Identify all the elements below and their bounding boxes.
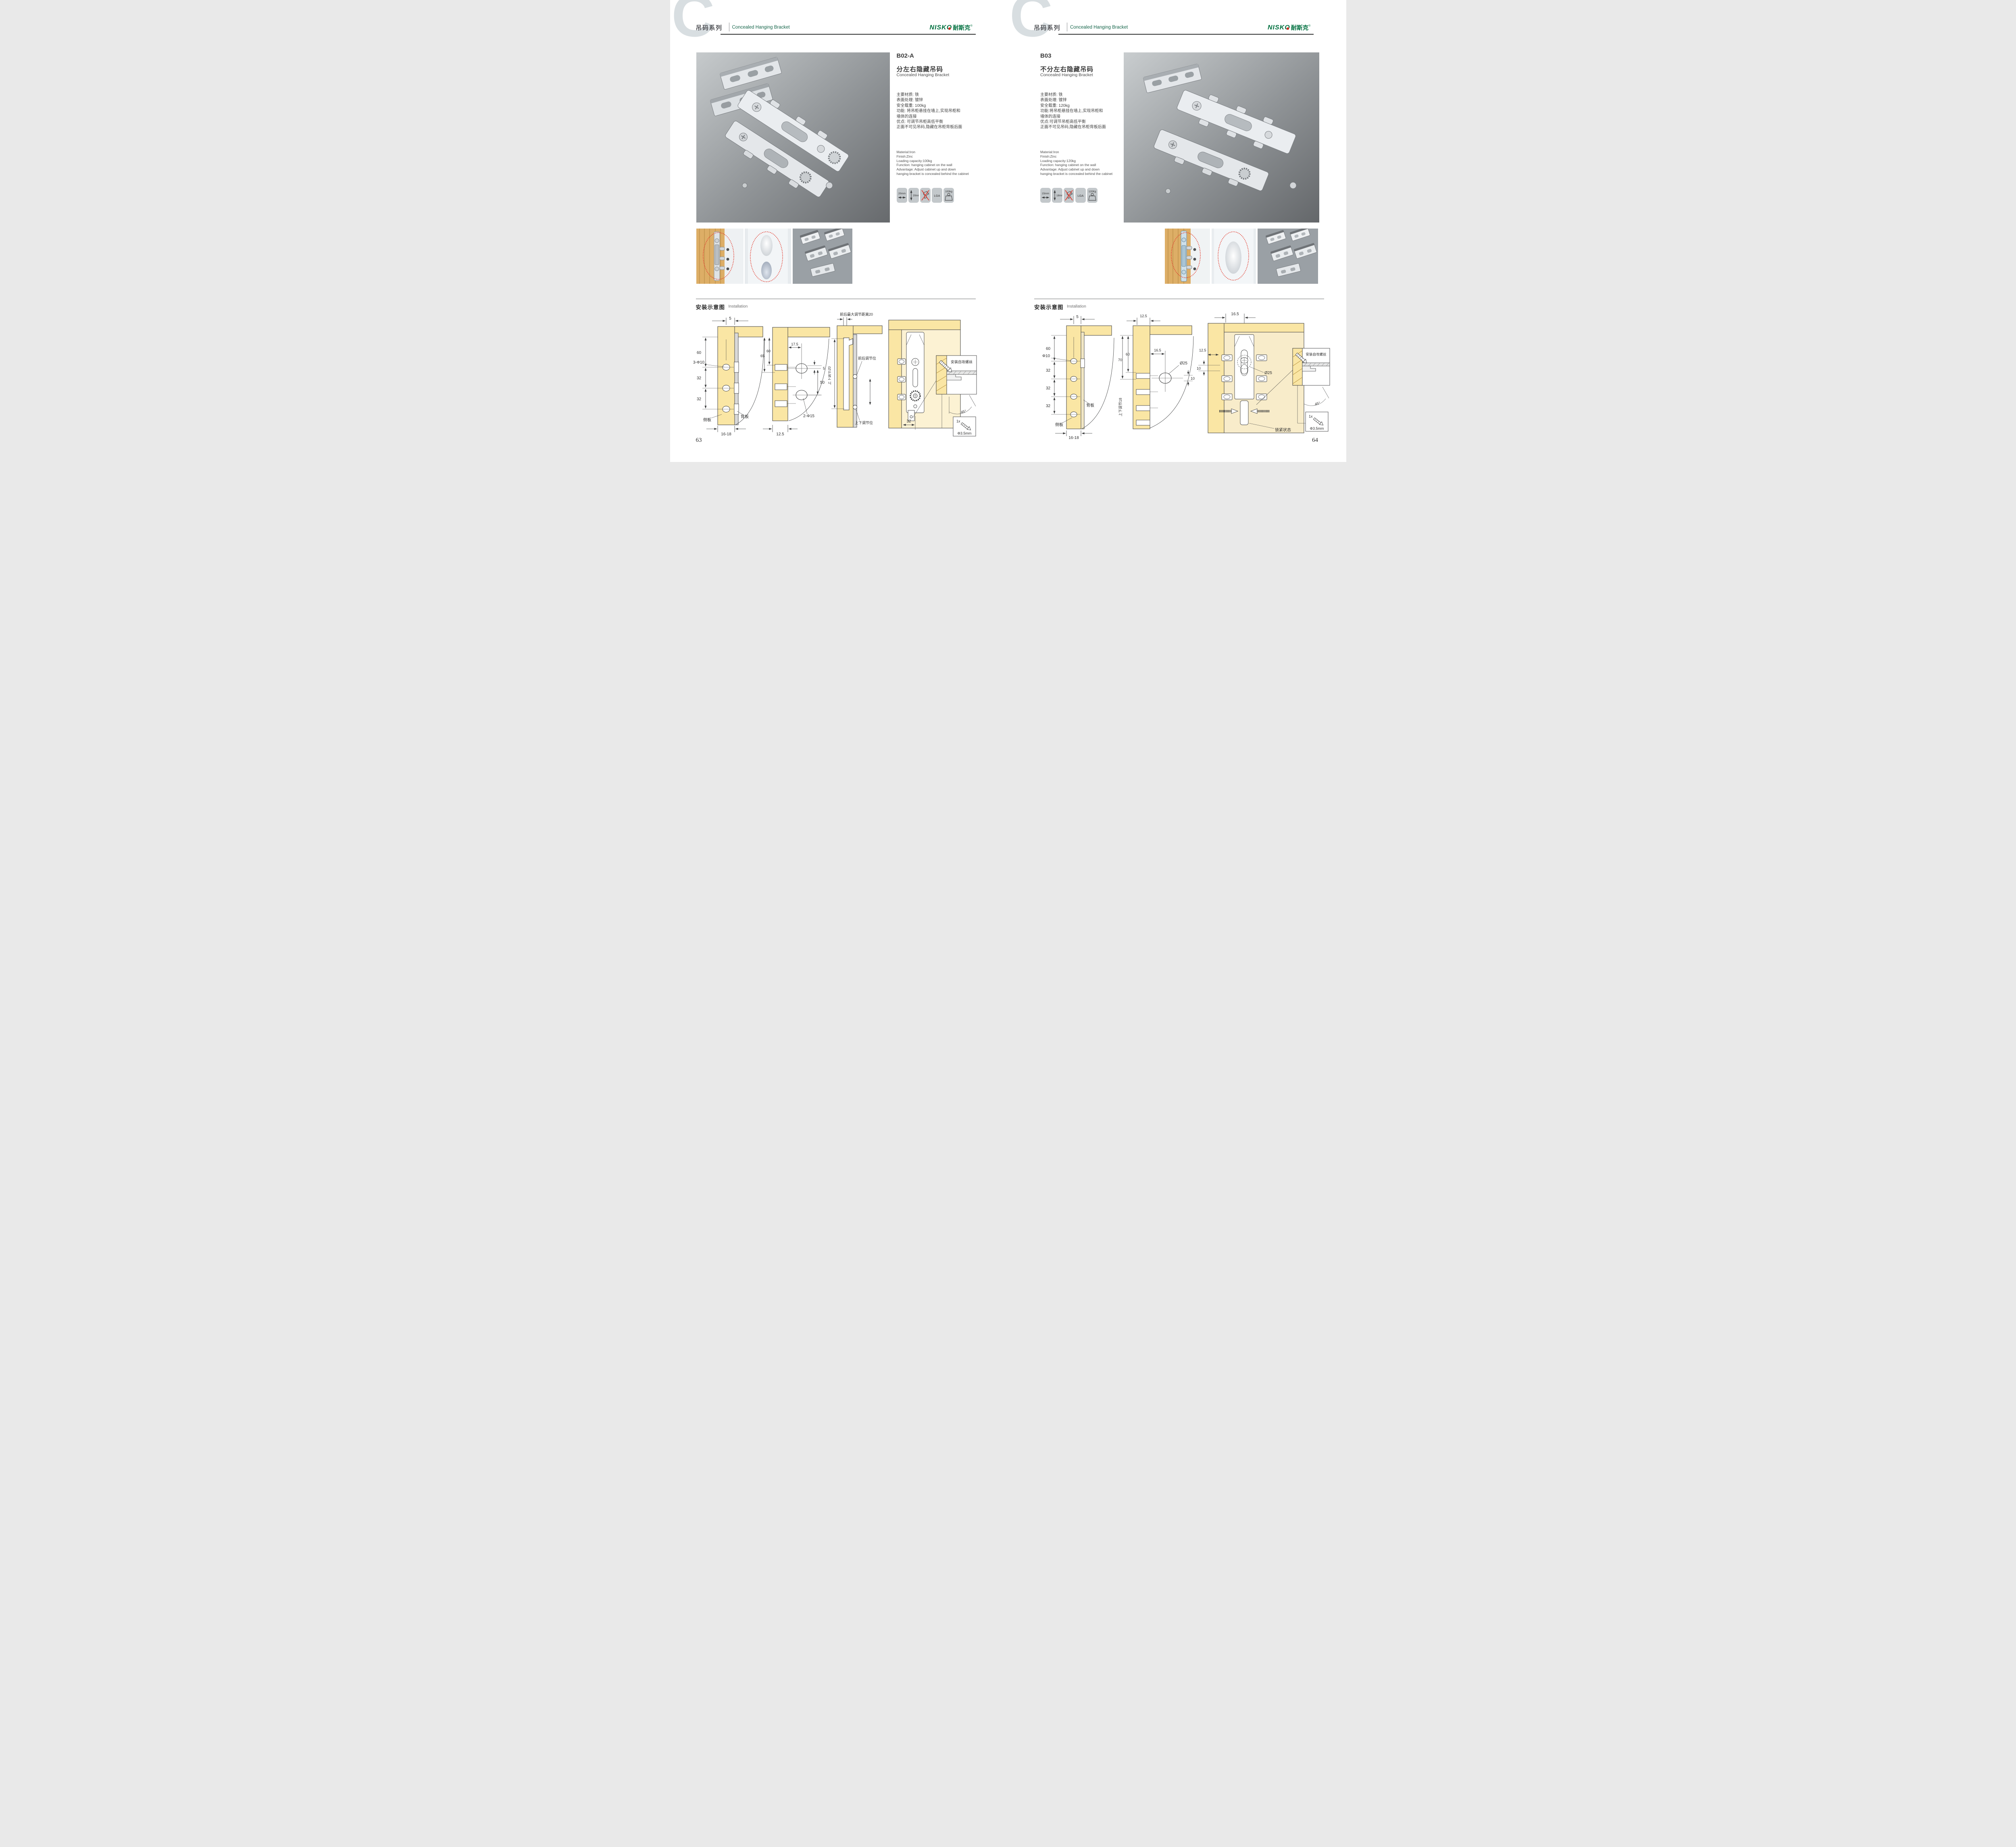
series-title-cn: 吊码系列: [1034, 23, 1060, 32]
spec-line: 功能:将吊柜悬挂在墙上,实现吊柜和: [1040, 108, 1129, 114]
spec-line: 功能: 将吊柜悬挂在墙上,实现吊柜和: [897, 108, 983, 114]
svg-text:15mm: 15mm: [1042, 192, 1049, 195]
brand-logo-cn: 耐斯克: [953, 23, 971, 32]
svg-text:16.5: 16.5: [1231, 312, 1239, 316]
svg-text:120Kg: 120Kg: [1089, 190, 1096, 193]
installation-diagram-mounted-bracket: 32 安装自攻螺丝 45°: [885, 317, 978, 438]
spec-line: 主要材质: 铁: [897, 92, 983, 98]
svg-text:5: 5: [823, 366, 825, 370]
svg-text:12.5: 12.5: [776, 432, 784, 436]
spec-line: Advantage: Adjust cabinet up and down: [897, 167, 985, 172]
svg-text:20mm: 20mm: [913, 194, 919, 197]
spec-line: 主要材质: 铁: [1040, 92, 1129, 98]
product-photo-b02a: [696, 52, 890, 223]
product-name-cn: 分左右隐藏吊码: [897, 64, 943, 73]
page-number: 63: [696, 437, 702, 444]
spec-line: hanging bracket is concealed behind the …: [1040, 172, 1131, 176]
page-64: C 吊码系列 Concealed Hanging Bracket NISKO 耐…: [1008, 0, 1346, 462]
series-watermark: C: [672, 0, 715, 46]
installation-title-en: Installation: [1067, 304, 1086, 309]
svg-text:32: 32: [697, 376, 702, 381]
svg-text:60: 60: [1046, 347, 1051, 351]
svg-text:1x: 1x: [956, 419, 960, 423]
product-specs-en: Material:Iron Finish:Zinc Loading capaci…: [1040, 150, 1131, 176]
svg-text:安装自攻螺丝: 安装自攻螺丝: [950, 360, 972, 364]
svg-text:3-Φ10: 3-Φ10: [693, 360, 704, 365]
product-model: B03: [1040, 52, 1052, 59]
series-title-en: Concealed Hanging Bracket: [732, 25, 790, 30]
spec-line: Advantage: Adjust cabinet up and down: [1040, 167, 1131, 172]
thumb-installed-bracket: [1165, 229, 1210, 284]
spec-line: 表面处理: 镀锌: [1040, 98, 1129, 103]
feature-icons-row: 20mm 20mm LGA: [897, 188, 954, 203]
spec-line: Loading capacity:100kg: [897, 159, 985, 163]
svg-text:1x: 1x: [1309, 414, 1313, 418]
spec-line: 安全载重: 100kg: [897, 103, 983, 108]
no-drill-icon: [1064, 188, 1074, 203]
load-capacity-icon: 120Kg: [1087, 188, 1098, 203]
series-watermark: C: [1010, 0, 1053, 46]
thumb-installed-bracket: [696, 229, 744, 284]
catalog-spread: C 吊码系列 Concealed Hanging Bracket NISKO 耐…: [670, 0, 1346, 462]
spec-line: 墙体的连接: [897, 114, 983, 119]
svg-text:100kg: 100kg: [945, 190, 952, 193]
thumb-plate-set: [793, 229, 852, 284]
svg-text:上下调节20: 上下调节20: [828, 366, 831, 385]
svg-text:上下调节位: 上下调节位: [855, 420, 873, 425]
product-specs-en: Material:Iron Finish:Zinc Loading capaci…: [897, 150, 985, 176]
svg-text:前后调节位: 前后调节位: [858, 356, 876, 360]
svg-text:65: 65: [760, 354, 764, 358]
installation-title-cn: 安装示意图: [696, 303, 725, 311]
width-adjust-icon: 15mm: [1040, 188, 1051, 203]
page-63: C 吊码系列 Concealed Hanging Bracket NISKO 耐…: [670, 0, 1008, 462]
spec-line: Finish:Zinc: [1040, 154, 1131, 159]
svg-text:17.5: 17.5: [791, 342, 798, 346]
svg-text:侧板: 侧板: [1055, 422, 1063, 427]
spec-line: Function: hanging cabinet on the wall: [1040, 163, 1131, 167]
thumb-concealed-hole: [1212, 229, 1256, 284]
svg-text:16.5: 16.5: [1154, 348, 1161, 352]
thumb-plate-set: [1258, 229, 1318, 284]
installation-diagram-locked-bracket: 16.5 Ø25: [1196, 310, 1331, 443]
svg-text:Ø25: Ø25: [1264, 371, 1272, 375]
spec-line: 正面不可见吊码,隐藏在吊柜背板后面: [1040, 125, 1129, 130]
load-capacity-icon: 100kg: [943, 188, 954, 203]
spec-line: 表面处理: 镀锌: [897, 98, 983, 103]
svg-text:Φ3.5mm: Φ3.5mm: [1310, 426, 1324, 431]
product-specs-cn: 主要材质: 铁 表面处理: 镀锌 安全载重: 100kg 功能: 将吊柜悬挂在墙…: [897, 92, 983, 130]
svg-text:32: 32: [906, 419, 911, 424]
no-drill-icon: [920, 188, 931, 203]
product-photo-b03: [1124, 52, 1319, 223]
svg-text:Φ3.5mm: Φ3.5mm: [957, 431, 971, 435]
product-name-cn: 不分左右隐藏吊码: [1040, 64, 1093, 73]
svg-text:18mm: 18mm: [1056, 194, 1062, 197]
svg-text:45°: 45°: [960, 409, 966, 414]
svg-text:45°: 45°: [1314, 401, 1321, 406]
product-name-en: Concealed Hanging Bracket: [897, 73, 950, 77]
svg-text:60: 60: [697, 351, 702, 355]
spec-line: Function: hanging cabinet on the wall: [897, 163, 985, 167]
installation-diagram-hole-positions: 12.5 Ø25 16.5 70: [1118, 314, 1196, 439]
svg-text:5: 5: [729, 316, 731, 321]
thumb-concealed-holes: [745, 229, 791, 284]
svg-text:16-18: 16-18: [1068, 436, 1079, 439]
svg-text:20mm: 20mm: [898, 192, 905, 195]
installation-title-cn: 安装示意图: [1034, 303, 1064, 311]
installation-diagram-side-section: 5 60 32 32 32 Φ10 背板 侧板: [1040, 314, 1116, 439]
installation-diagram-adjustment: 前后最大调节距离20 上下调节20 前后调节位 上下调节位: [828, 311, 885, 438]
section-rule: [696, 299, 976, 299]
product-photo-b02a-render: [696, 52, 890, 223]
svg-text:10: 10: [1191, 376, 1195, 381]
brand-logo: NISKO 耐斯克 ®: [930, 23, 973, 32]
product-photo-b03-render: [1124, 52, 1319, 223]
brand-logo-dot-icon: [948, 27, 951, 30]
spec-line: Finish:Zinc: [897, 154, 985, 159]
svg-text:50: 50: [820, 381, 825, 385]
certificate-icon: LGA: [932, 188, 942, 203]
svg-text:前后最大调节距离20: 前后最大调节距离20: [839, 312, 873, 316]
brand-logo-dot-icon: [1287, 27, 1289, 30]
svg-text:12.5: 12.5: [1140, 314, 1147, 318]
brand-logo: NISKO 耐斯克 ®: [1268, 23, 1310, 32]
svg-text:32: 32: [1046, 404, 1051, 408]
spec-line: Material:Iron: [1040, 150, 1131, 154]
header-rule: [721, 34, 976, 35]
header-divider: [1067, 23, 1067, 31]
svg-text:16-18: 16-18: [721, 432, 731, 436]
registered-mark: ®: [1308, 25, 1310, 27]
product-name-en: Concealed Hanging Bracket: [1040, 73, 1093, 77]
svg-text:32: 32: [1046, 368, 1051, 373]
certificate-icon: LGA: [1075, 188, 1086, 203]
registered-mark: ®: [971, 25, 973, 27]
spec-line: 正面不可见吊码,隐藏在吊柜背板后面: [897, 125, 983, 130]
svg-text:背板: 背板: [1086, 403, 1094, 408]
spec-line: Loading capacity:120kg: [1040, 159, 1131, 163]
svg-text:锁紧状态: 锁紧状态: [1275, 427, 1291, 433]
height-adjust-icon: 20mm: [908, 188, 919, 203]
svg-text:32: 32: [697, 397, 702, 401]
svg-text:5: 5: [1076, 315, 1079, 319]
series-title-cn: 吊码系列: [696, 23, 723, 32]
product-specs-cn: 主要材质: 铁 表面处理: 镀锌 安全载重: 120kg 功能:将吊柜悬挂在墙上…: [1040, 92, 1129, 130]
brand-logo-cn: 耐斯克: [1291, 23, 1309, 32]
svg-text:背板: 背板: [741, 414, 749, 419]
spec-line: 优点: 可调节吊柜高低平衡: [897, 119, 983, 125]
svg-text:Φ10: Φ10: [1042, 354, 1050, 358]
spec-line: 墙体的连接: [1040, 114, 1129, 119]
svg-text:上下调节18: 上下调节18: [1118, 398, 1123, 416]
svg-text:Ø25: Ø25: [1180, 361, 1187, 366]
installation-diagram-side-section: 5 60 32 32 3-Φ10 侧板 背板: [693, 315, 765, 436]
spec-line: hanging bracket is concealed behind the …: [897, 172, 985, 176]
spec-line: Material:Iron: [897, 150, 985, 154]
installation-title-en: Installation: [729, 304, 748, 309]
section-rule: [1034, 299, 1324, 299]
page-number: 64: [1312, 437, 1318, 444]
svg-text:60: 60: [1126, 352, 1130, 356]
header-rule: [1058, 34, 1314, 35]
spec-line: 安全载重: 120kg: [1040, 103, 1129, 108]
svg-text:侧板: 侧板: [703, 417, 711, 422]
installation-diagram-hole-positions: 65 60 17.5 5 50 2-Φ15 12.5: [760, 315, 831, 436]
width-adjust-icon: 20mm: [897, 188, 907, 203]
header-divider: [729, 23, 729, 31]
svg-text:12.5: 12.5: [1199, 348, 1206, 352]
svg-text:60: 60: [766, 349, 771, 353]
series-title-en: Concealed Hanging Bracket: [1070, 25, 1128, 30]
svg-text:10: 10: [1197, 366, 1201, 370]
feature-icons-row: 15mm 18mm LGA: [1040, 188, 1098, 203]
svg-text:LGA: LGA: [1077, 194, 1083, 198]
spec-line: 优点:可调节吊柜高低平衡: [1040, 119, 1129, 125]
height-adjust-icon: 18mm: [1052, 188, 1062, 203]
product-model: B02-A: [897, 52, 914, 59]
svg-text:LGA: LGA: [934, 194, 940, 198]
svg-text:安装自攻螺丝: 安装自攻螺丝: [1306, 352, 1327, 356]
svg-text:32: 32: [1046, 386, 1051, 391]
svg-text:70: 70: [1118, 358, 1122, 362]
svg-text:2-Φ15: 2-Φ15: [803, 414, 814, 418]
